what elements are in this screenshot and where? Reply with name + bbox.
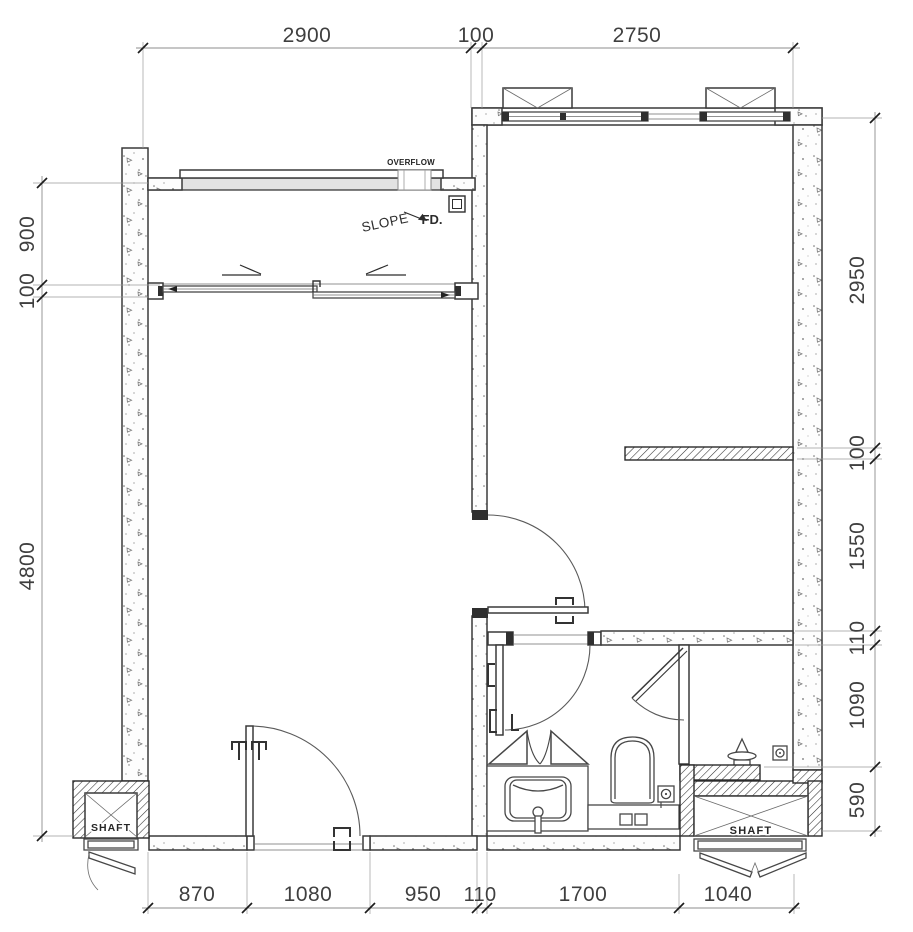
door-handle xyxy=(512,714,519,730)
overflow-box xyxy=(398,170,431,190)
door-handle xyxy=(556,616,573,623)
louvre-flap xyxy=(700,853,752,877)
floor-drain-symbol xyxy=(449,196,465,212)
dim-right-3: 110 xyxy=(846,621,869,656)
slide-direction-symbol xyxy=(222,265,406,275)
dim-right-4: 1090 xyxy=(846,681,869,730)
drain-outlet-symbol xyxy=(773,746,787,760)
bottom-wall-left xyxy=(149,836,247,850)
dim-left-2: 4800 xyxy=(16,542,39,591)
door-swing-arc xyxy=(505,645,590,730)
door-jamb xyxy=(472,608,488,618)
bifold-mirror-doors xyxy=(489,731,588,764)
dim-top-1: 100 xyxy=(458,24,495,47)
dim-right-2: 1550 xyxy=(846,522,869,571)
door-jamb xyxy=(247,836,254,850)
windows xyxy=(502,88,790,121)
water-tap-symbol xyxy=(728,739,756,766)
door-jamb xyxy=(588,632,594,645)
dim-bottom-1: 1080 xyxy=(284,883,333,906)
middle-wall-lower xyxy=(472,616,487,836)
dim-bottom-5: 1040 xyxy=(704,883,753,906)
dim-top-0: 2900 xyxy=(283,24,332,47)
door-handle xyxy=(556,598,573,605)
balcony-sliding-door xyxy=(148,265,478,299)
shaft-label-right: SHAFT xyxy=(730,825,773,837)
door-leaf xyxy=(488,607,588,613)
bedroom-door xyxy=(488,515,588,623)
window-1 xyxy=(502,88,648,121)
slope-label: SLOPE xyxy=(360,210,410,235)
door-leaf xyxy=(496,645,503,735)
shaft-wall xyxy=(680,765,694,836)
top-wall-end-left xyxy=(472,108,502,125)
louvre-flap xyxy=(758,853,806,877)
window-2 xyxy=(700,88,790,121)
balcony-rail-end xyxy=(441,178,475,190)
door-handle xyxy=(232,742,246,760)
door-strike xyxy=(334,841,350,850)
louvre-flap xyxy=(89,852,135,874)
dim-right-5: 590 xyxy=(846,782,869,819)
toilet-partition xyxy=(679,645,689,764)
dim-left-1: 100 xyxy=(16,273,39,310)
dim-bottom-0: 870 xyxy=(179,883,216,906)
toilet-tank xyxy=(588,805,679,829)
door-handle xyxy=(488,664,495,686)
walls xyxy=(122,108,822,850)
wall-stub xyxy=(625,447,793,460)
dim-bottom-4: 1700 xyxy=(559,883,608,906)
bottom-wall-right xyxy=(487,836,680,850)
dim-bottom-3: 110 xyxy=(464,884,497,906)
entry-door xyxy=(232,726,370,850)
dim-left-0: 900 xyxy=(16,216,39,253)
dim-right-1: 100 xyxy=(846,435,869,472)
door-jamb xyxy=(363,836,370,850)
dim-right-0: 2950 xyxy=(846,256,869,305)
door-jamb xyxy=(506,632,513,645)
floor-plan-sheet: OVERFLOW SLOPE FD. xyxy=(0,0,913,932)
sink-counter xyxy=(487,766,588,833)
overflow-label: OVERFLOW xyxy=(387,158,435,167)
slope-annotation: SLOPE FD. xyxy=(360,210,442,235)
shaft-wall xyxy=(808,781,822,836)
door-jamb xyxy=(472,510,488,520)
shaft-label-left: SHAFT xyxy=(91,822,131,834)
floor-plan-drawing: OVERFLOW SLOPE FD. xyxy=(0,0,913,932)
balcony: OVERFLOW SLOPE FD. xyxy=(148,158,478,299)
bottom-wall-mid xyxy=(370,836,477,850)
shaft-louvre xyxy=(84,839,138,890)
door-handle xyxy=(252,742,266,760)
faucet-stem xyxy=(535,816,541,833)
bathroom-top-wall xyxy=(601,631,793,645)
bathroom-door xyxy=(488,645,590,735)
fd-label: FD. xyxy=(422,212,443,227)
left-shaft: SHAFT xyxy=(73,781,149,890)
door-strike xyxy=(334,828,350,837)
awning-symbol-2 xyxy=(706,88,775,108)
right-shaft: SHAFT xyxy=(680,765,822,877)
door-leaf xyxy=(632,648,683,698)
dim-bottom-2: 950 xyxy=(405,883,442,906)
toilet xyxy=(588,737,679,829)
door-swing-arc xyxy=(632,698,684,720)
dim-top-2: 2750 xyxy=(613,24,662,47)
balcony-rail-end xyxy=(148,178,182,190)
left-wall xyxy=(122,148,148,781)
awning-symbol-1 xyxy=(503,88,572,108)
shaft-louvre xyxy=(694,839,806,877)
right-wall xyxy=(793,125,822,770)
